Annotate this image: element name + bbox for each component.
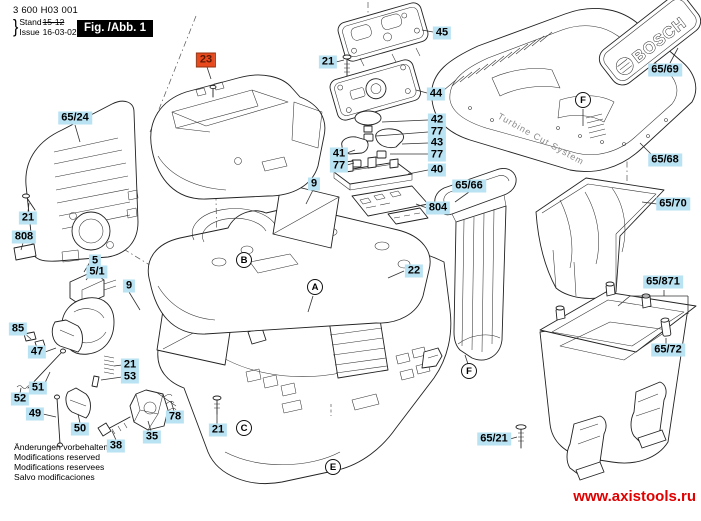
callout-51[interactable]: 51 [29,382,47,395]
callout-65-21[interactable]: 65/21 [477,433,511,446]
callout-52[interactable]: 52 [11,393,29,406]
issue-date: 16-03-02 [43,28,77,38]
part-side-cover [26,101,138,262]
callout-9[interactable]: 9 [308,178,320,191]
balloon-E: E [325,459,341,475]
callout-40[interactable]: 40 [428,164,446,177]
callout-50[interactable]: 50 [71,423,89,436]
callout-78[interactable]: 78 [166,411,184,424]
callout-38[interactable]: 38 [107,440,125,453]
callout-65-70[interactable]: 65/70 [656,198,690,211]
note-es: Salvo modificaciones [14,472,108,482]
callout-65-24[interactable]: 65/24 [58,112,92,125]
note-de: Änderungen vorbehalten [14,442,108,452]
revision-block: Stand } 15-12 Issue 16-03-02 [13,18,77,37]
part-hopper-top: Turbine Cut System BOSCH [432,0,701,172]
callout-5-1[interactable]: 5/1 [86,266,107,279]
balloon-F: F [575,92,591,108]
callout-49[interactable]: 49 [26,408,44,421]
callout-804[interactable]: 804 [426,202,450,215]
callout-65-66[interactable]: 65/66 [452,180,486,193]
callout-53[interactable]: 53 [121,371,139,384]
brace-glyph: } [13,18,18,36]
callout-77[interactable]: 77 [330,160,348,173]
callout-21[interactable]: 21 [19,212,37,225]
part-top-cover [151,75,325,199]
balloon-F: F [461,363,477,379]
figure-label: Fig. /Abb. 1 [77,20,153,37]
callout-65-871[interactable]: 65/871 [643,276,683,289]
callout-77[interactable]: 77 [428,149,446,162]
callout-21[interactable]: 21 [209,424,227,437]
callout-65-68[interactable]: 65/68 [648,154,682,167]
parts-diagram-page: Turbine Cut System BOSCH [0,0,701,521]
balloon-A: A [307,279,323,295]
callout-9[interactable]: 9 [123,280,135,293]
part-collection-box [540,282,696,480]
document-number: 3 600 H03 001 [13,5,78,16]
callout-85[interactable]: 85 [9,323,27,336]
website-watermark[interactable]: www.axistools.ru [573,488,696,505]
legal-notes: Änderungen vorbehalten Modifications res… [14,442,108,482]
issue-label: Issue [19,28,41,38]
balloon-B: B [236,252,252,268]
callout-47[interactable]: 47 [28,346,46,359]
balloon-C: C [236,420,252,436]
part-plates [328,1,430,122]
note-fr: Modifications reservees [14,462,108,472]
callout-44[interactable]: 44 [427,88,445,101]
callout-65-72[interactable]: 65/72 [651,344,685,357]
callout-65-69[interactable]: 65/69 [648,64,682,77]
callout-35[interactable]: 35 [143,431,161,444]
callout-45[interactable]: 45 [433,27,451,40]
callout-21[interactable]: 21 [319,56,337,69]
callout-808[interactable]: 808 [12,231,36,244]
note-en: Modifications reserved [14,452,108,462]
callout-23[interactable]: 23 [197,54,215,67]
callout-22[interactable]: 22 [405,265,423,278]
